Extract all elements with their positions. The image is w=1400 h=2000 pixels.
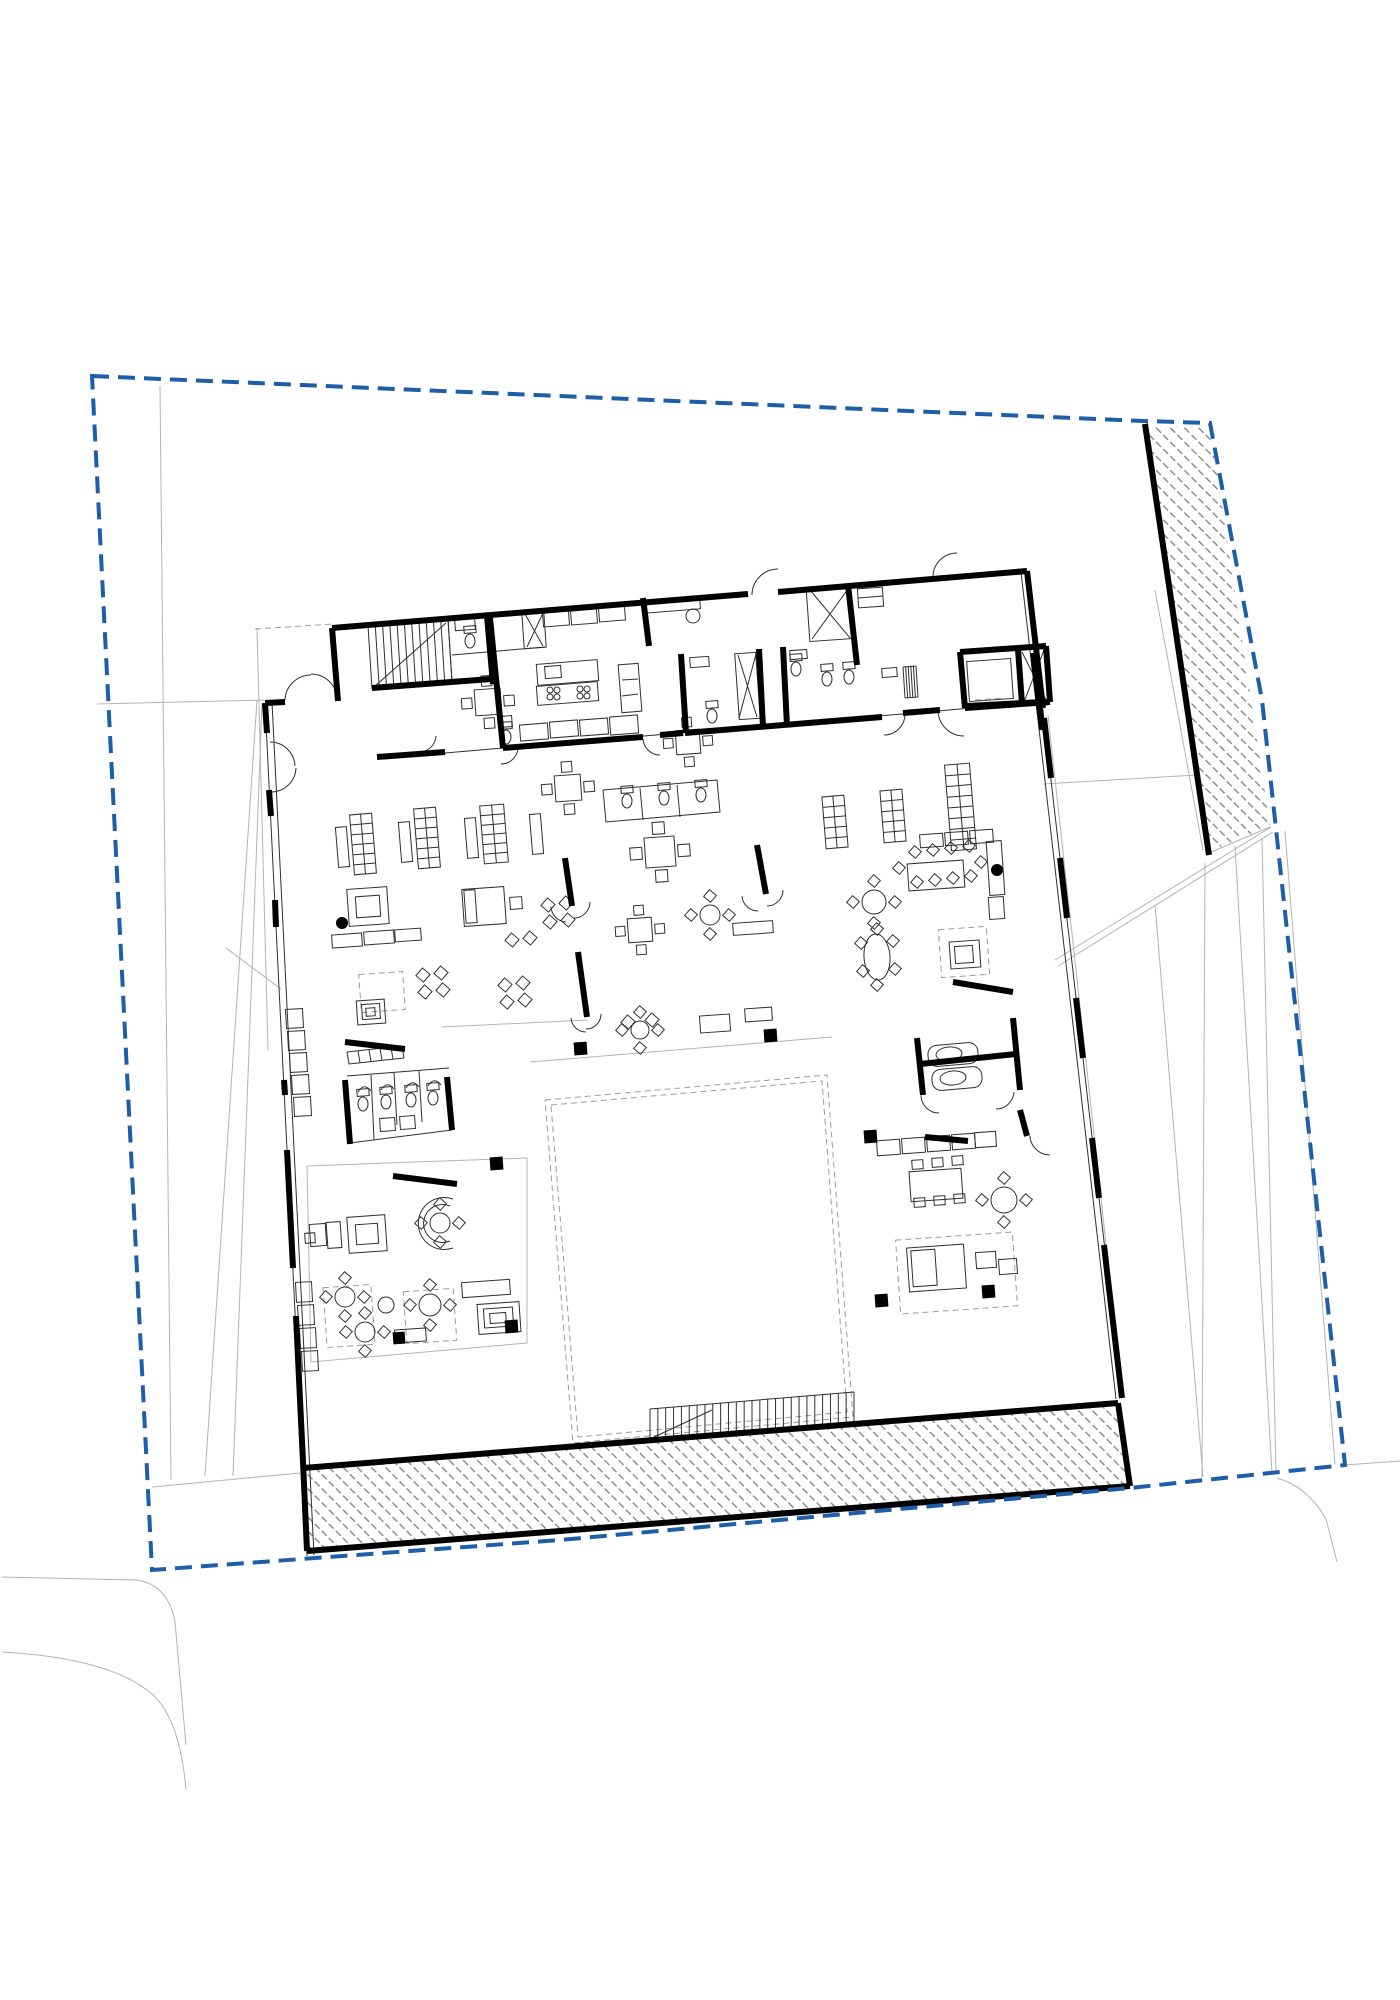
floor-plan-drawing xyxy=(0,0,1400,2000)
canvas xyxy=(0,0,1400,2000)
layer-terrace-dashes xyxy=(255,624,1017,1443)
layer-hatch-zones xyxy=(306,426,1270,1550)
layer-property-boundary xyxy=(92,376,1345,1570)
layer-walls xyxy=(265,424,1209,1551)
